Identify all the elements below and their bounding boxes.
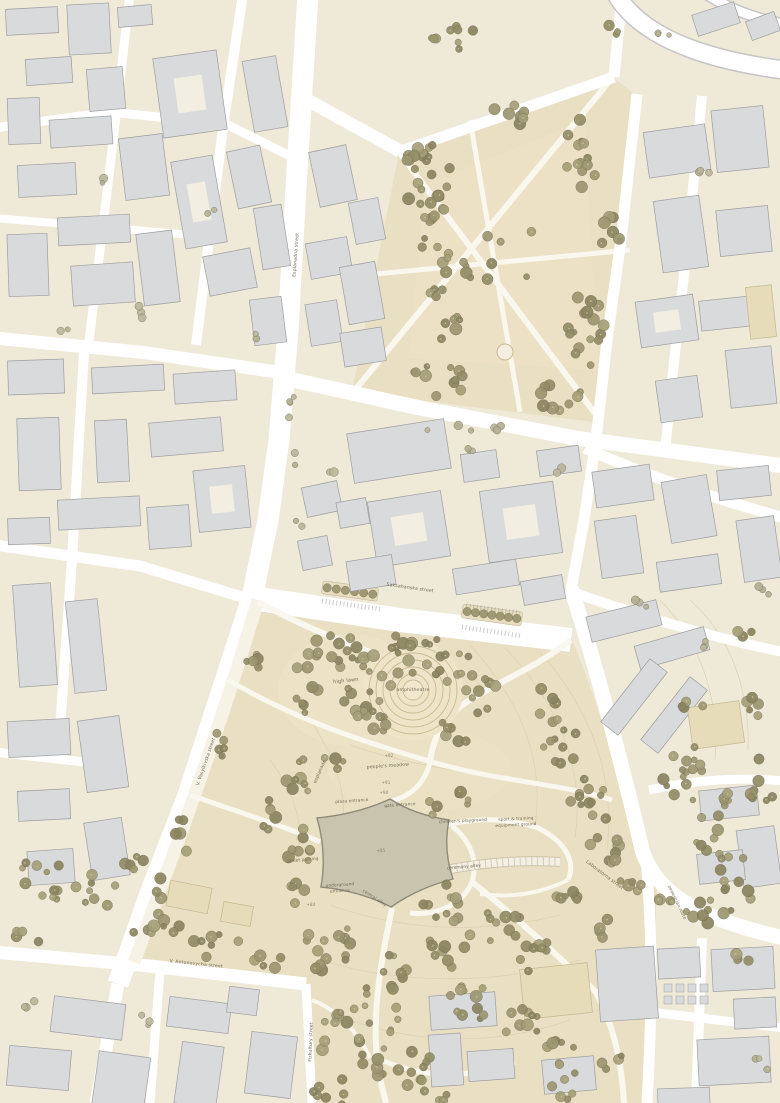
building	[244, 1031, 297, 1098]
courtyard	[653, 309, 681, 333]
small-hut	[700, 996, 708, 1004]
north-park-fountain	[497, 344, 513, 360]
courtyard	[174, 75, 207, 114]
small-hut	[688, 996, 696, 1004]
building	[174, 1041, 224, 1103]
site-plan-svg: Saksahanska streetEsplanadna streetV. Va…	[0, 0, 780, 1103]
building	[711, 946, 775, 991]
building	[657, 947, 701, 979]
courtyard	[209, 484, 235, 514]
building	[367, 491, 450, 568]
building	[71, 262, 136, 306]
building	[5, 7, 58, 36]
building	[17, 789, 70, 822]
label-elev-91: +91	[382, 780, 391, 785]
building	[340, 327, 387, 367]
building	[49, 116, 113, 148]
building	[467, 1048, 515, 1081]
building	[717, 465, 772, 500]
label-amphitheatre: amphitheatre	[397, 687, 430, 693]
building	[716, 205, 773, 256]
building	[153, 50, 228, 138]
building	[203, 248, 258, 296]
label-elev-92: +92	[385, 753, 394, 758]
tan-building	[687, 701, 744, 750]
building	[594, 515, 644, 578]
building	[336, 498, 370, 529]
building	[57, 496, 140, 530]
building	[653, 195, 709, 273]
building	[94, 419, 129, 483]
building	[635, 294, 699, 348]
building	[657, 1087, 710, 1103]
building	[12, 583, 57, 687]
building	[57, 214, 130, 246]
building	[147, 505, 192, 550]
building	[25, 56, 73, 85]
building	[305, 300, 343, 346]
building	[149, 417, 224, 457]
small-hut	[664, 996, 672, 1004]
courtyard	[503, 504, 540, 540]
small-hut	[676, 996, 684, 1004]
building	[655, 375, 702, 422]
building	[7, 359, 64, 395]
label-elev-84: +84	[307, 902, 316, 907]
building	[89, 1051, 151, 1103]
building	[118, 134, 169, 201]
tan-building	[745, 285, 776, 339]
building	[460, 450, 500, 483]
building	[7, 97, 41, 144]
building	[17, 163, 77, 198]
building	[67, 3, 112, 55]
building	[91, 364, 164, 394]
building	[592, 464, 654, 508]
building	[6, 1045, 71, 1090]
building	[297, 535, 332, 570]
small-hut	[700, 984, 708, 992]
building	[711, 105, 769, 172]
building	[479, 481, 562, 563]
building	[173, 370, 237, 404]
small-hut	[688, 984, 696, 992]
courtyard	[391, 512, 428, 546]
building	[596, 946, 659, 1022]
building	[733, 997, 777, 1029]
building	[117, 5, 153, 28]
building	[7, 718, 71, 757]
building	[725, 346, 777, 408]
building	[17, 417, 61, 490]
building	[193, 465, 251, 532]
small-hut	[676, 984, 684, 992]
building	[7, 233, 49, 296]
small-hut	[664, 984, 672, 992]
building	[86, 67, 126, 112]
site-plan-map: Saksahanska streetEsplanadna streetV. Va…	[0, 0, 780, 1103]
label-elev-90: +90	[380, 790, 389, 795]
building	[227, 986, 260, 1015]
label-elev-85: +85	[377, 848, 386, 853]
building	[8, 517, 51, 544]
